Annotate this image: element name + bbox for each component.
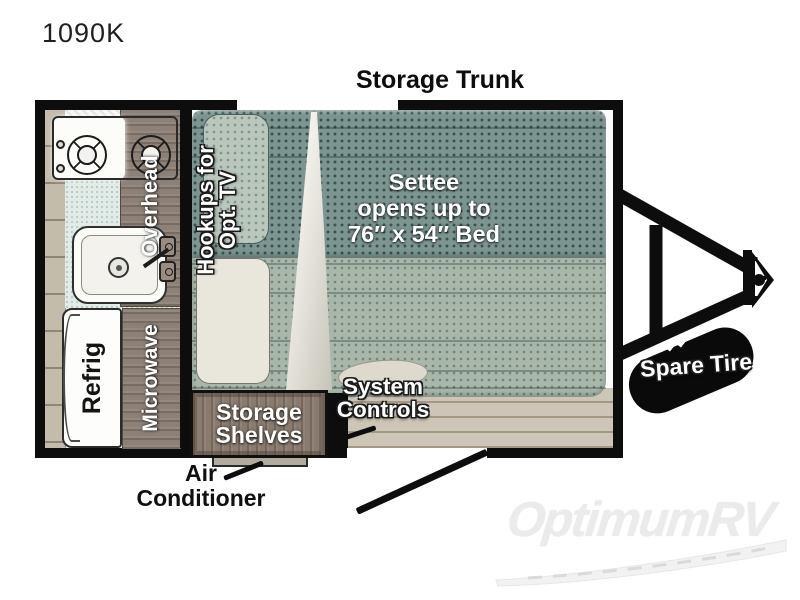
storage-shelves: Storage Shelves	[190, 390, 328, 458]
air-conditioner-label: Air Conditioner	[95, 461, 307, 512]
stove-burner-icon	[67, 135, 107, 175]
watermark-road-icon	[488, 536, 793, 596]
storage-trunk-opening	[237, 100, 398, 110]
stove-knob-icon	[56, 140, 65, 149]
floorplan-body: Storage Shelves Overhead Microwave Refri…	[35, 100, 623, 458]
settee-label: Settee opens up to 76″ x 54″ Bed	[344, 170, 504, 248]
refrigerator-label: Refrig	[77, 313, 107, 443]
model-number: 1090K	[42, 18, 125, 49]
overhead-label: Overhead	[135, 126, 165, 286]
storage-shelves-label: Storage Shelves	[216, 401, 303, 447]
trailer-tongue-icon	[600, 140, 800, 440]
microwave-label: Microwave	[138, 308, 164, 448]
tv-hookups-label: Hookups for Opt. TV	[187, 115, 247, 305]
storage-trunk-label: Storage Trunk	[280, 66, 600, 95]
faucet-icon	[108, 257, 129, 278]
system-controls-label: System Controls	[333, 376, 433, 421]
stove-knob-icon	[56, 164, 65, 173]
